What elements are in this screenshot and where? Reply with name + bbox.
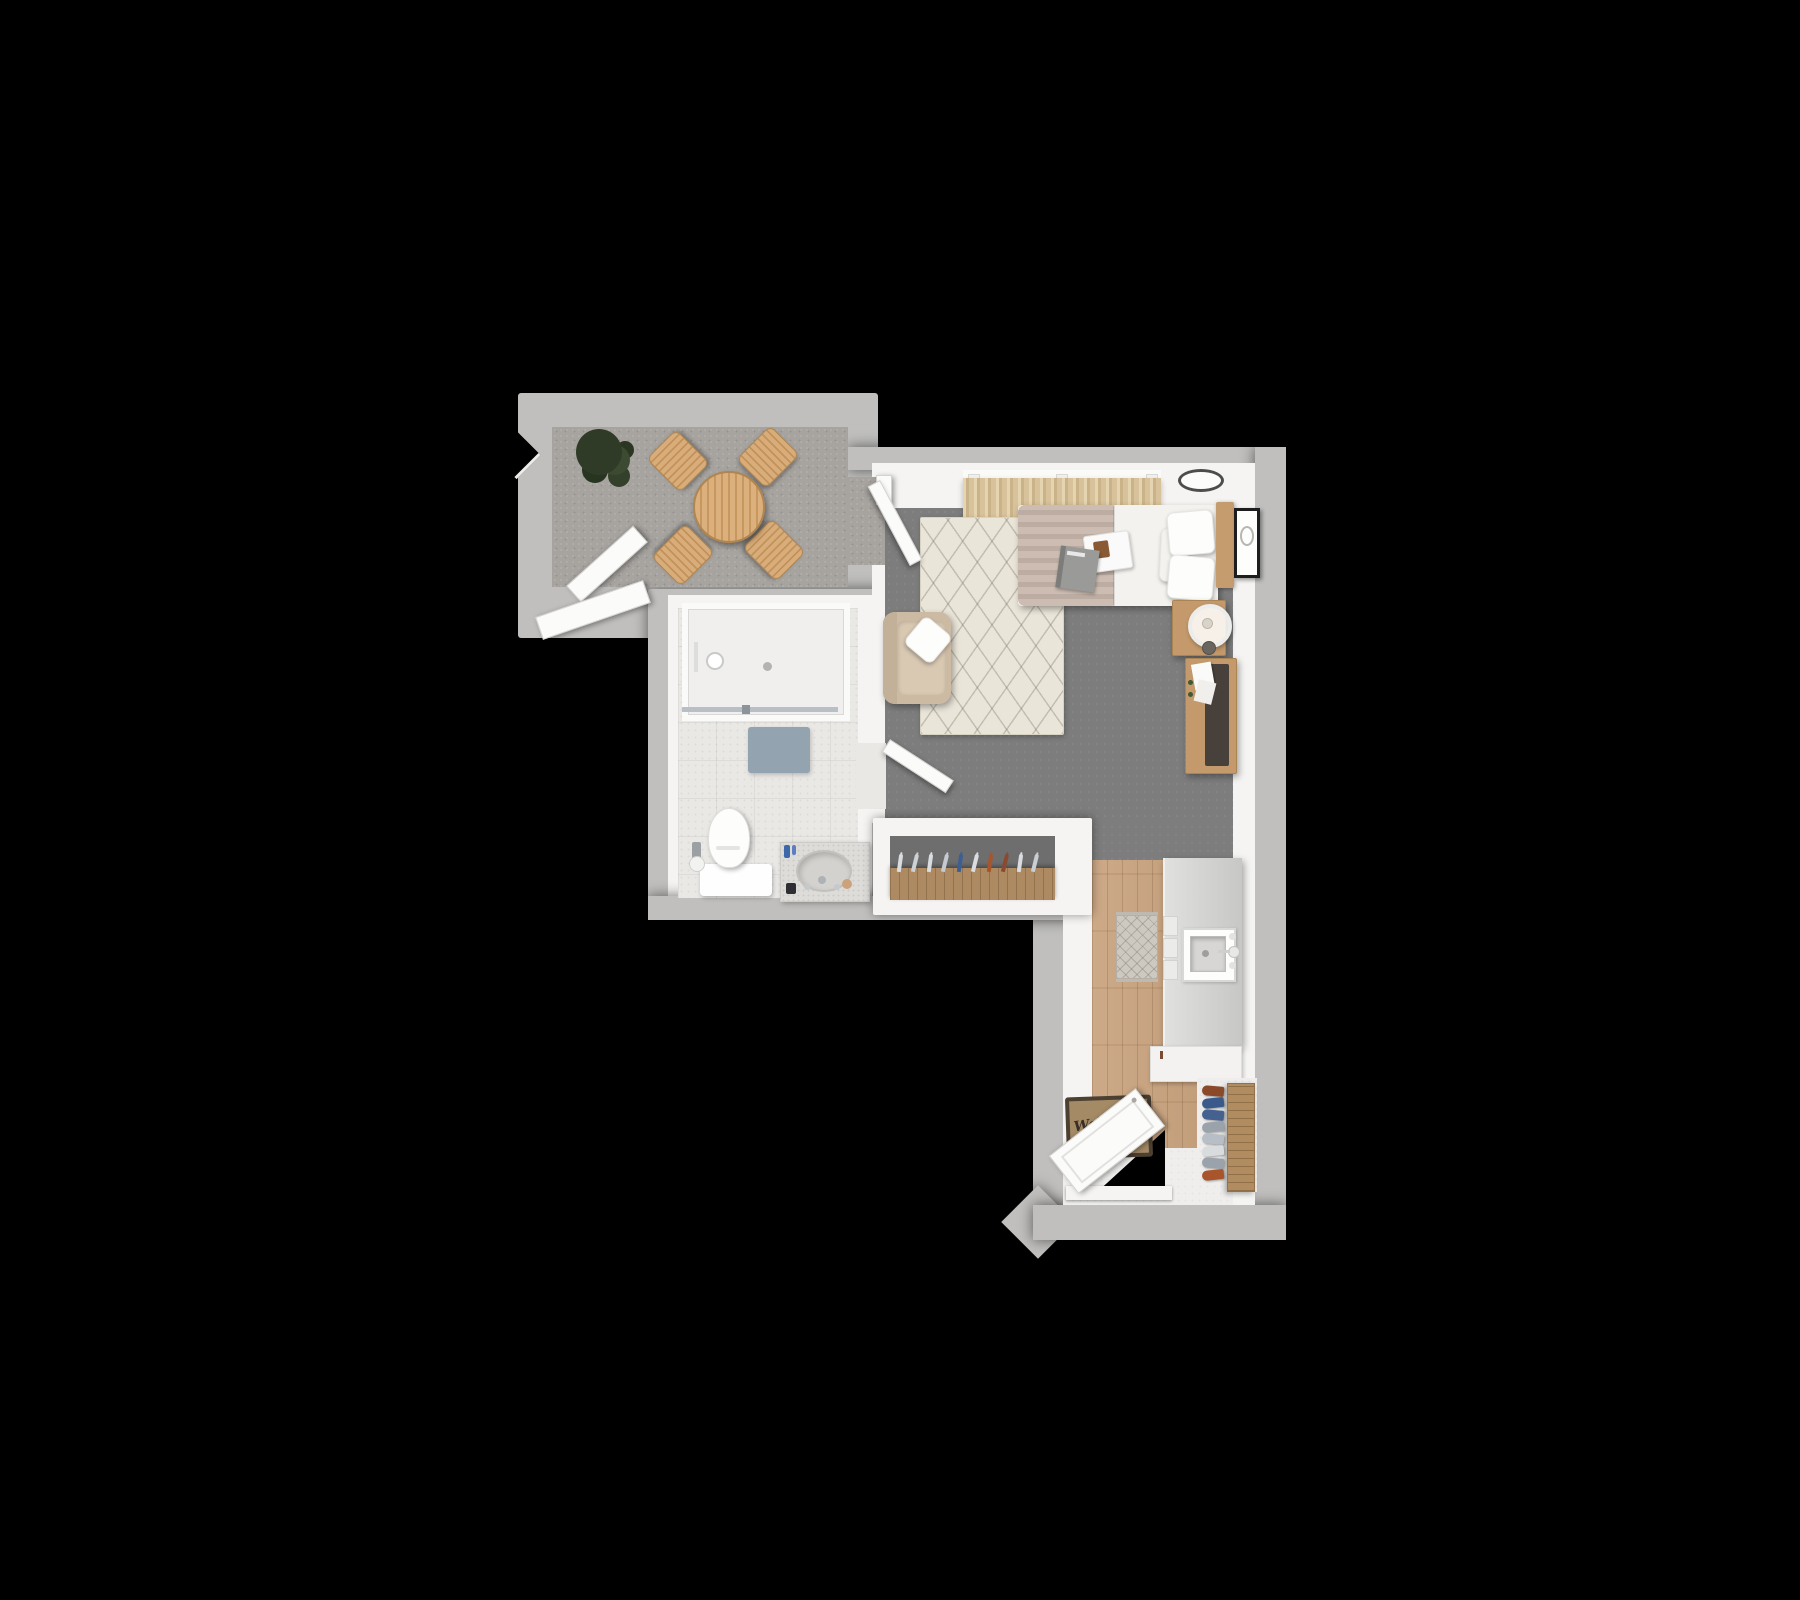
clothes-hangers (898, 854, 1048, 876)
bottom-outer-wall (1033, 1205, 1286, 1240)
toilet-paper-roll (689, 856, 705, 872)
clothes-hanger (911, 854, 919, 872)
toothbrush (792, 845, 796, 855)
faucet-knob (804, 884, 810, 890)
shower-drain (763, 662, 772, 671)
shower-glass-hinge (742, 705, 750, 714)
shoe (1202, 1121, 1225, 1133)
shoe (1202, 1169, 1225, 1181)
clothes-hanger (1001, 854, 1009, 872)
counter-drawer (1163, 916, 1178, 936)
armchair-back (883, 612, 897, 704)
faucet-handle (1229, 933, 1236, 940)
vanity-faucet (818, 876, 826, 884)
clothes-hanger (987, 854, 993, 872)
counter-drawer (1163, 938, 1178, 958)
soap-dispenser (786, 883, 796, 894)
shoe (1202, 1097, 1225, 1109)
clothes-hanger (971, 854, 979, 872)
shoe (1202, 1145, 1225, 1157)
shower-wall-bar (694, 642, 698, 672)
counter-drawer (1163, 960, 1178, 980)
cup (1202, 641, 1216, 655)
shower-head (706, 652, 724, 670)
shoes (1202, 1086, 1226, 1186)
sink-drain (1202, 950, 1209, 957)
toothbrush-cup (784, 845, 790, 858)
shoe (1202, 1109, 1225, 1121)
faucet-spout (1218, 950, 1230, 953)
bath-mat (748, 727, 810, 773)
bed-pillow (1166, 554, 1216, 602)
clothes-hanger (897, 854, 903, 872)
faucet-handle (1229, 962, 1236, 969)
clothes-hanger (1031, 854, 1039, 872)
shoe (1202, 1133, 1225, 1145)
toilet-mat (700, 864, 772, 896)
ceiling-lamp (1178, 469, 1224, 492)
shoe (1202, 1157, 1225, 1169)
wall-art-motif (1240, 526, 1254, 546)
desk-plant-sprig (1188, 680, 1193, 685)
living-room-floor-extension (1092, 823, 1233, 863)
outdoor-dining-table (693, 471, 765, 543)
floor-plan: Welcome (0, 0, 1800, 1600)
clothes-hanger (1017, 854, 1023, 872)
faucet-knob (834, 884, 840, 890)
cabinet-handle (1160, 1051, 1163, 1059)
headboard (1216, 502, 1234, 588)
soap-dish (842, 879, 852, 889)
clothes-hanger (927, 854, 933, 872)
base-cabinet (1150, 1046, 1242, 1082)
shoe-rack (1227, 1083, 1255, 1192)
shoe (1202, 1085, 1225, 1097)
shower-glass-panel (682, 707, 838, 712)
toilet-seat-line (716, 846, 740, 850)
clothes-hanger (941, 854, 949, 872)
bathroom-doorway (856, 743, 886, 809)
kitchen-runner-rug (1116, 915, 1158, 979)
bed-pillow (1166, 509, 1216, 557)
toilet (708, 808, 750, 868)
clothes-hanger (957, 854, 963, 872)
lamp-finial (1202, 618, 1213, 629)
potted-plant (576, 429, 622, 475)
